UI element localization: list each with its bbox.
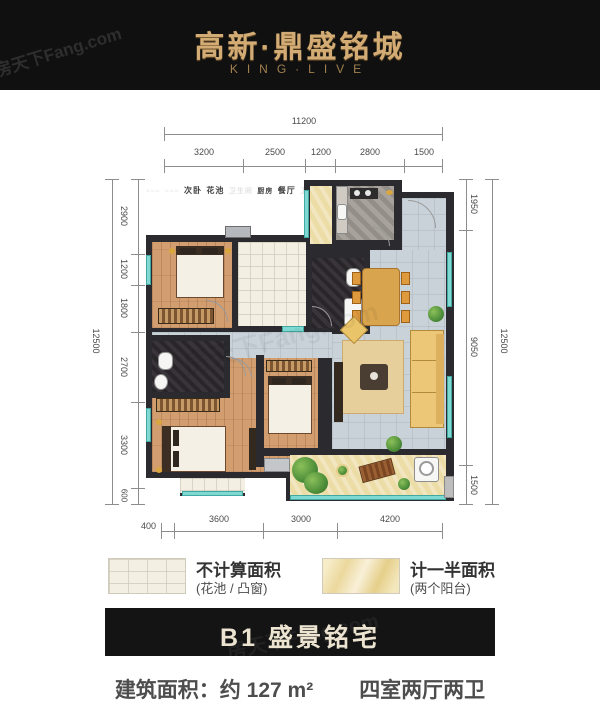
pillow-icon <box>292 378 306 384</box>
lamp-icon <box>169 248 175 254</box>
dim-left-seg: 2700 <box>119 347 129 387</box>
service-balcony-floor <box>310 186 332 244</box>
dim-tick <box>442 159 443 173</box>
rooms-description: 四室两厅两卫 <box>359 674 485 704</box>
dim-tick <box>164 127 165 141</box>
dim-tick <box>105 504 119 505</box>
dim-tick <box>442 523 443 539</box>
outside-area <box>286 501 454 506</box>
dim-tick <box>243 159 244 173</box>
wall <box>332 240 402 250</box>
outside-area <box>245 478 286 506</box>
fridge-icon <box>337 204 347 220</box>
unit-summary: 建筑面积：约 127 m² 四室两厅两卫 <box>0 674 600 704</box>
bowl-icon <box>386 190 393 195</box>
room-label-flower-bed: 花池 <box>206 186 224 195</box>
wall <box>308 250 370 258</box>
dim-tick <box>337 523 338 539</box>
dim-left-seg: 1800 <box>119 288 129 328</box>
project-title: 高新·鼎盛铭城 <box>0 22 600 66</box>
built-area: 建筑面积：约 127 m² <box>115 674 313 704</box>
legend-subtitle: (两个阳台) <box>410 578 471 597</box>
room-label-dining: 餐厅 <box>278 186 296 195</box>
legend-subtitle: (花池 / 凸窗) <box>196 578 268 597</box>
tv-cabinet-icon <box>334 362 343 422</box>
plant-icon <box>428 306 444 322</box>
pillow-icon <box>272 378 286 384</box>
dim-bottom-seg: 3000 <box>276 514 326 524</box>
pillow-icon <box>173 430 179 446</box>
room-label-kitchen: 厨房 <box>257 188 273 195</box>
burner-icon <box>354 190 360 196</box>
dim-top-seg: 2500 <box>250 147 300 157</box>
wardrobe-icon <box>266 360 312 372</box>
dim-line <box>162 531 443 532</box>
dim-line <box>165 166 443 167</box>
dim-top-seg: 2800 <box>345 147 395 157</box>
doormat <box>264 458 290 472</box>
dim-bottom-seg: 400 <box>128 521 156 531</box>
chair-icon <box>401 272 410 285</box>
wall <box>256 355 264 467</box>
room-label-bedroom-top: 次卧 <box>184 186 202 195</box>
outside-step <box>444 476 454 498</box>
dim-line <box>138 180 139 505</box>
dim-left-seg: 3300 <box>119 425 129 465</box>
sofa-seam <box>412 360 436 361</box>
chair-icon <box>352 272 361 285</box>
window <box>146 408 151 442</box>
dim-tick <box>161 523 162 539</box>
balcony-railing <box>290 495 446 500</box>
window <box>447 252 452 307</box>
sofa-back <box>436 334 444 424</box>
header-banner: 房天下Fang.com 高新·鼎盛铭城 KING·LIVE <box>0 0 600 90</box>
legend-swatch-half <box>322 558 400 594</box>
dim-tick <box>131 488 145 489</box>
pillow-icon <box>202 248 218 254</box>
sofa-seam <box>412 392 436 393</box>
chair-icon <box>401 310 410 323</box>
dim-bottom-seg: 3600 <box>194 514 244 524</box>
outside-area <box>146 478 180 506</box>
dim-tick <box>442 127 443 141</box>
towel-icon: ≈≈≈ <box>146 188 161 195</box>
dim-left-seg: 600 <box>120 484 129 508</box>
ac-platform <box>225 226 251 238</box>
dim-right-seg: 9050 <box>469 327 479 367</box>
dim-left-seg: 1200 <box>119 249 129 289</box>
lamp-icon <box>156 419 162 425</box>
towel-icon: ≈≈≈ <box>165 188 180 195</box>
outside-area <box>402 180 454 192</box>
lamp-icon <box>225 248 231 254</box>
dim-line <box>466 180 467 505</box>
dim-tick <box>131 179 145 180</box>
potted-plant-icon <box>336 464 349 477</box>
dim-tick <box>131 504 145 505</box>
dim-tick <box>105 179 119 180</box>
dim-tick <box>459 230 473 231</box>
tv-cabinet-icon <box>249 428 256 470</box>
room-label-bath-top: 卫生间 <box>229 188 253 195</box>
window <box>304 190 309 238</box>
dim-tick <box>305 159 306 173</box>
dim-top-seg: 3200 <box>179 147 229 157</box>
dim-tick <box>335 159 336 173</box>
dim-line <box>492 180 493 505</box>
dim-bottom-seg: 4200 <box>365 514 415 524</box>
dim-tick <box>263 523 264 539</box>
plant-icon <box>386 436 402 452</box>
bed-headboard <box>162 426 171 472</box>
dim-right-seg: 1950 <box>469 184 479 224</box>
plant-icon <box>398 478 410 490</box>
dim-tick <box>459 179 473 180</box>
lamp-icon <box>156 467 162 473</box>
bed-icon <box>162 426 226 472</box>
pillow-icon <box>173 451 179 467</box>
dim-right-seg: 1500 <box>469 465 479 505</box>
dim-tick <box>131 332 145 333</box>
unit-name: B1 盛景铭宅 <box>105 618 495 654</box>
dim-top-total: 11200 <box>165 116 443 126</box>
chair-icon <box>401 291 410 304</box>
dim-top-seg: 1500 <box>399 147 449 157</box>
dim-tick <box>164 159 165 173</box>
project-subtitle: KING·LIVE <box>0 62 600 76</box>
outside-area <box>180 496 245 506</box>
washer-drum-icon <box>419 461 434 476</box>
legend-swatch-excluded <box>108 558 186 594</box>
bay-window-glass <box>182 491 243 496</box>
dim-left-total: 12500 <box>91 321 101 361</box>
toilet-icon <box>158 352 173 370</box>
dim-left-seg: 2900 <box>119 196 129 236</box>
dim-top-seg: 1200 <box>296 147 346 157</box>
burner-icon <box>365 190 371 196</box>
wardrobe-icon <box>156 398 220 412</box>
dim-right-total: 12500 <box>499 321 509 361</box>
dim-tick <box>174 523 175 539</box>
window <box>447 376 452 438</box>
dim-tick <box>485 504 499 505</box>
dim-tick <box>404 159 405 173</box>
pillow-icon <box>180 248 196 254</box>
dim-tick <box>131 254 145 255</box>
dim-line <box>165 134 443 135</box>
window <box>146 255 151 285</box>
dim-tick <box>131 402 145 403</box>
dim-tick <box>131 285 145 286</box>
plant-icon <box>304 472 328 494</box>
dim-line <box>112 180 113 505</box>
unit-banner: 房天下Fang.com B1 盛景铭宅 <box>105 608 495 656</box>
dim-tick <box>485 179 499 180</box>
floorplan-page: 房天下Fang.com 高新·鼎盛铭城 KING·LIVE 11200 3200… <box>0 0 600 720</box>
tea-set-icon <box>370 372 378 380</box>
sink-icon <box>154 374 168 390</box>
